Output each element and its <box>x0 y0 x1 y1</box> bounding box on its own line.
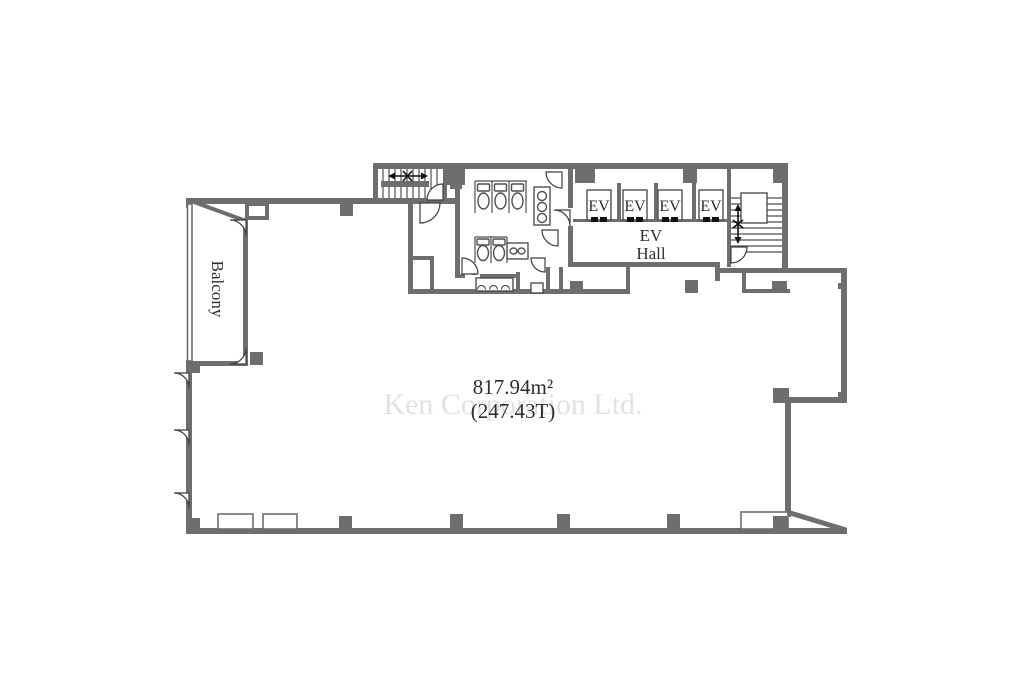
door-arc-toilet-top <box>546 172 562 188</box>
wall-lobby-b <box>559 267 563 293</box>
nub-left-bottom <box>192 518 200 528</box>
wall-right-lower <box>785 397 791 517</box>
floor-plan-drawing: Ken Corporation Ltd. <box>0 0 1024 683</box>
wall-core-top <box>373 163 788 169</box>
basin-icon <box>538 192 547 201</box>
area-sqm-label: 817.94m² <box>473 375 553 399</box>
pillar-core-ne <box>773 163 788 183</box>
wall-balcony-inner <box>243 218 248 366</box>
pillar-toilet-nw <box>450 172 462 189</box>
sink-icon <box>518 248 525 254</box>
ev-door-tick <box>636 217 643 222</box>
toilet-bowl-icon <box>478 246 489 261</box>
wall-stub-evhall <box>715 262 720 281</box>
toilet-bowl-icon <box>512 193 523 209</box>
ev-shaft-2: EV <box>623 190 647 222</box>
ev-label: EV <box>659 198 681 215</box>
pillar-bottom-right <box>773 516 788 530</box>
ev-door-tick <box>591 217 598 222</box>
wall-balcony-diagonal <box>194 202 246 221</box>
area-tsubo-label: (247.43T) <box>471 399 556 423</box>
floor-plan-canvas: Ken Corporation Ltd. <box>0 0 1024 683</box>
door-arc-stairs-left <box>427 184 443 200</box>
basin-icon <box>538 214 547 223</box>
toilet-bowl-icon <box>494 246 505 261</box>
hollow-pillar-top-left <box>247 204 267 218</box>
pillar-bottom-1 <box>339 516 352 529</box>
balcony-label: Balcony <box>208 261 227 318</box>
door-arc-toilet-small <box>531 258 545 272</box>
wall-right-room-w <box>742 268 746 293</box>
toilet-bowl-icon <box>495 193 506 209</box>
wall-top-left <box>186 198 458 204</box>
wall-lobby-a <box>546 267 550 293</box>
window-box-2 <box>263 514 297 529</box>
ev-label: EV <box>700 198 722 215</box>
stair-landing-rail-left <box>381 181 429 187</box>
ev-hall-label-line2: Hall <box>636 244 666 263</box>
wall-corridor <box>408 198 413 294</box>
pillar-balcony-s <box>250 352 263 365</box>
ev-door-tick <box>712 217 719 222</box>
window-box-1 <box>218 514 253 529</box>
pillar-bottom-2 <box>450 514 463 528</box>
wall-ev-divider-3 <box>692 183 696 221</box>
wall-bottom-right-diagonal <box>787 512 846 530</box>
stair-landing-box-right <box>741 193 767 223</box>
pillar-bottom-3 <box>557 514 570 528</box>
toilet-cistern-icon <box>512 184 524 191</box>
wall-urinal-east <box>516 272 520 293</box>
ev-label: EV <box>588 198 610 215</box>
pillar-right-room <box>772 281 787 293</box>
ev-door-tick <box>703 217 710 222</box>
door-arc-corridor <box>420 203 440 223</box>
wall-small-room-e <box>430 256 434 293</box>
urinal-counter <box>476 278 513 291</box>
ev-door-tick <box>600 217 607 222</box>
wall-lobby-east <box>626 267 630 293</box>
nub-right-1 <box>838 283 843 289</box>
ev-door-tick <box>662 217 669 222</box>
ev-label: EV <box>624 198 646 215</box>
toilet-cistern-icon <box>478 184 490 191</box>
door-arc-evhall <box>554 210 570 226</box>
door-arc-stairs-right <box>731 247 747 263</box>
toilet-cistern-icon <box>493 239 505 245</box>
wall-ev-divider-1 <box>617 183 621 221</box>
staircase-right <box>731 193 782 252</box>
pillar-free-mid <box>685 280 698 293</box>
basin-icon <box>538 203 547 212</box>
wall-evhall-west-upper <box>568 163 573 208</box>
ev-shaft-1: EV <box>587 190 611 222</box>
nub-right-2 <box>838 392 843 398</box>
ev-shaft-3: EV <box>658 190 682 222</box>
toilet-fixtures-ladies <box>478 184 524 209</box>
pillar-lobby <box>570 281 583 293</box>
sink-icon <box>510 248 517 254</box>
pillar-ev-top-1 <box>575 169 595 183</box>
pillar-top-wall <box>340 204 353 216</box>
wall-evhall-west-lower <box>568 226 573 267</box>
ev-door-tick <box>627 217 634 222</box>
toilet-cistern-icon <box>495 184 507 191</box>
door-arc-toilet-mid <box>542 230 558 246</box>
doors <box>174 172 747 508</box>
pillar-right-step <box>773 388 789 403</box>
pillar-bottom-4 <box>667 514 680 528</box>
ev-hall-label-line1: EV <box>640 226 663 245</box>
ev-door-tick <box>671 217 678 222</box>
ev-shaft-4: EV <box>699 190 723 222</box>
toilet-cistern-icon <box>477 239 489 245</box>
nub-left-mid <box>192 363 200 373</box>
toilet-bowl-icon <box>478 193 489 209</box>
pillar-ev-top-2 <box>683 169 697 183</box>
wall-balcony-outer-window <box>188 204 193 361</box>
duct-box <box>531 283 543 293</box>
wall-stairs-left-w <box>373 163 378 204</box>
